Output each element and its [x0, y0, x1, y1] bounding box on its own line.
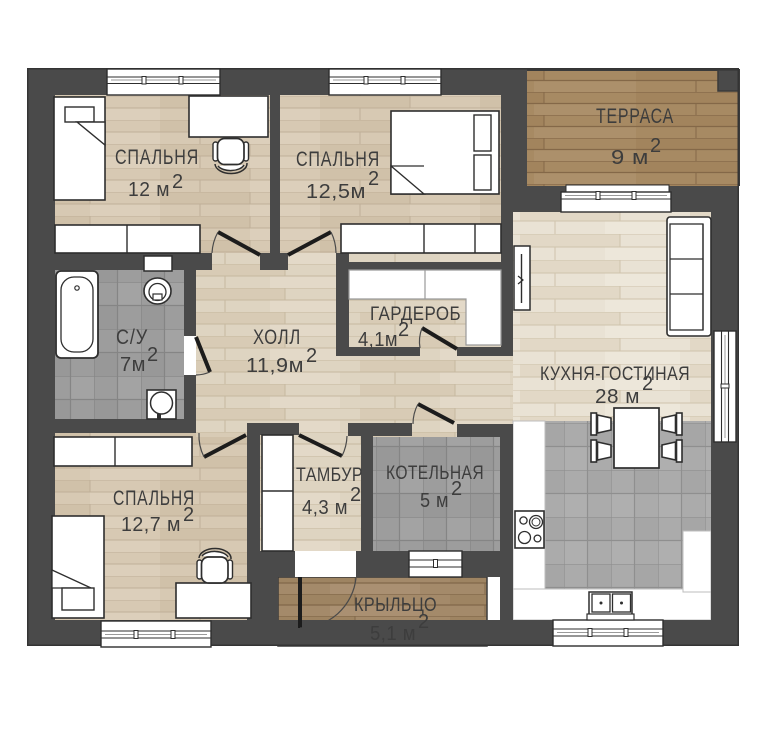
- svg-text:2: 2: [398, 319, 410, 341]
- svg-text:КУХНЯ-ГОСТИНАЯ: КУХНЯ-ГОСТИНАЯ: [540, 364, 690, 385]
- svg-text:ТАМБУР: ТАМБУР: [296, 465, 363, 486]
- svg-text:11,9м: 11,9м: [246, 355, 304, 377]
- svg-text:С/У: С/У: [116, 326, 148, 349]
- svg-text:5 м: 5 м: [420, 490, 449, 512]
- svg-text:2: 2: [350, 484, 362, 506]
- svg-text:КОТЕЛЬНАЯ: КОТЕЛЬНАЯ: [386, 463, 484, 484]
- svg-text:2: 2: [368, 168, 380, 190]
- svg-text:12,7 м: 12,7 м: [121, 514, 181, 536]
- svg-text:2: 2: [418, 611, 430, 633]
- svg-text:2: 2: [451, 478, 463, 500]
- svg-text:ТЕРРАСА: ТЕРРАСА: [596, 105, 674, 128]
- svg-text:28 м: 28 м: [595, 386, 640, 408]
- svg-text:ГАРДЕРОБ: ГАРДЕРОБ: [370, 304, 461, 325]
- svg-text:7м: 7м: [120, 354, 146, 376]
- svg-text:ХОЛЛ: ХОЛЛ: [253, 326, 301, 349]
- svg-text:4,1м: 4,1м: [358, 329, 398, 351]
- svg-text:2: 2: [172, 171, 184, 193]
- svg-text:2: 2: [306, 345, 318, 367]
- svg-text:9 м: 9 м: [611, 147, 649, 169]
- svg-text:12,5м: 12,5м: [306, 181, 366, 203]
- svg-text:4,3 м: 4,3 м: [302, 497, 348, 519]
- svg-text:5,1 м: 5,1 м: [370, 623, 416, 645]
- svg-text:2: 2: [147, 344, 159, 366]
- svg-text:2: 2: [183, 504, 195, 526]
- svg-text:12 м: 12 м: [128, 179, 170, 201]
- svg-text:2: 2: [642, 373, 654, 395]
- svg-text:СПАЛЬНЯ: СПАЛЬНЯ: [115, 146, 199, 169]
- svg-text:2: 2: [650, 135, 662, 157]
